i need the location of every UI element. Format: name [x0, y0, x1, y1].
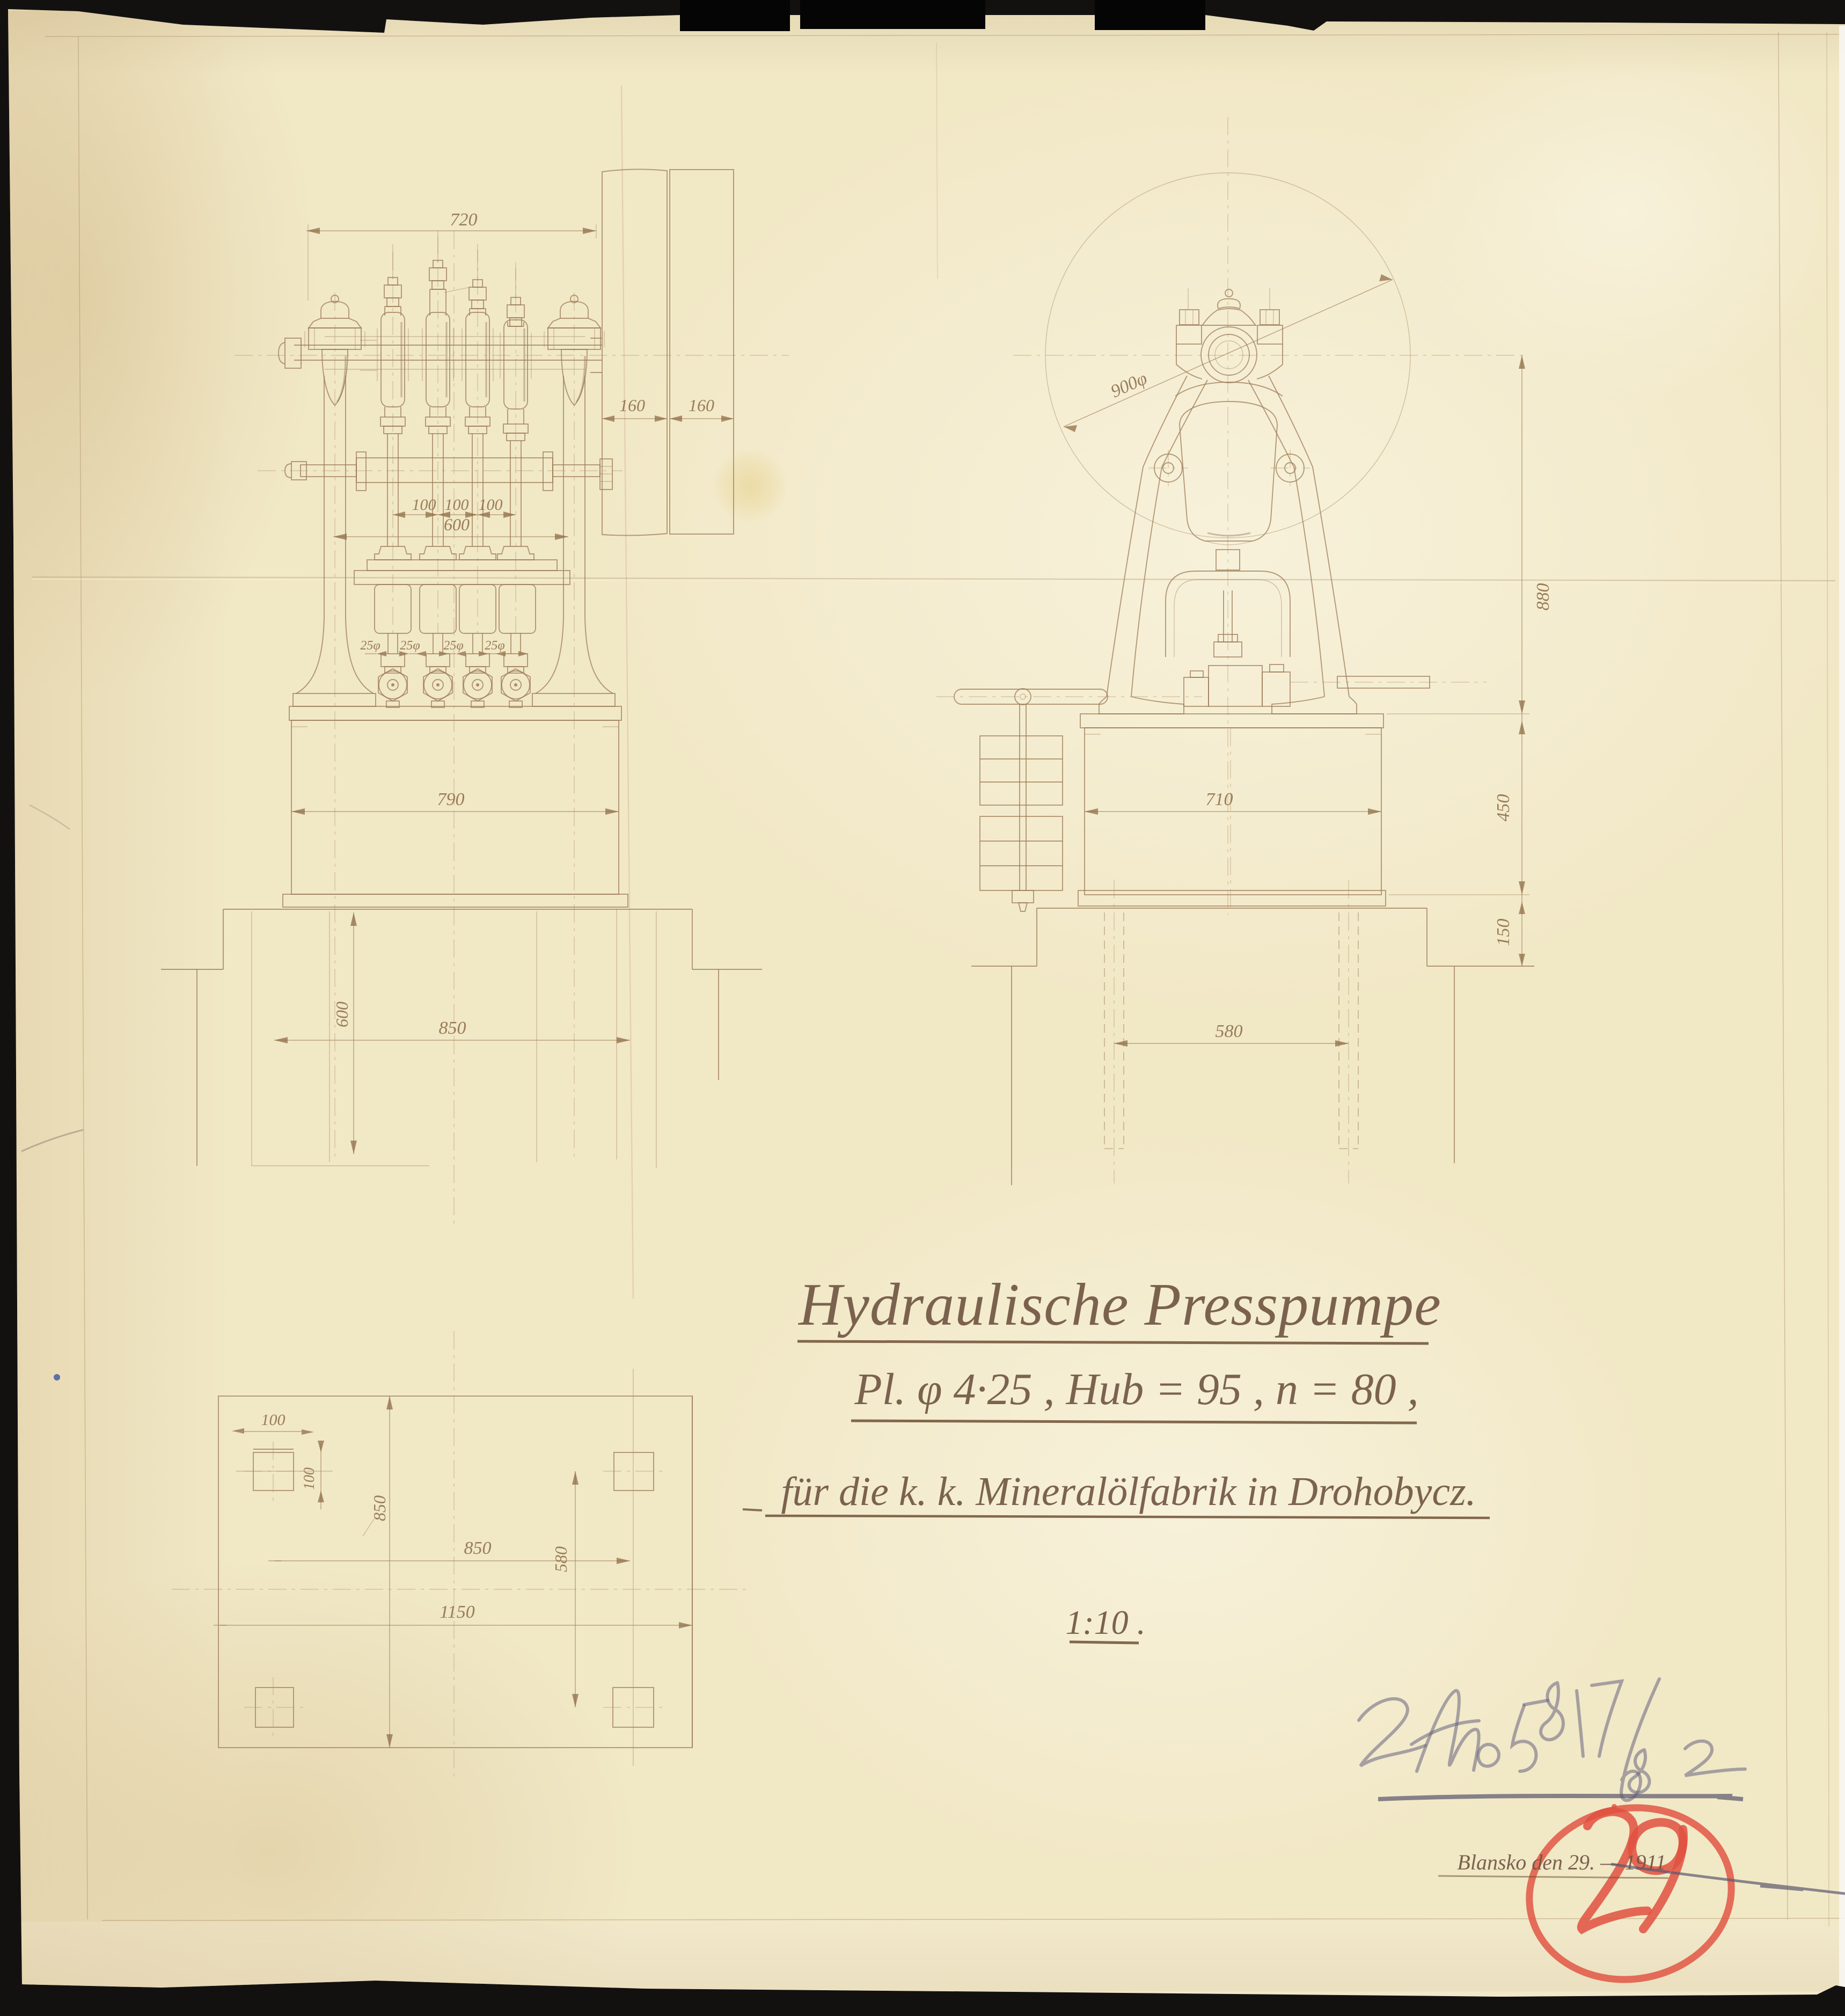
svg-text:150: 150 [1493, 919, 1513, 946]
svg-text:25φ: 25φ [400, 639, 420, 653]
svg-text:880: 880 [1533, 583, 1553, 611]
svg-text:25φ: 25φ [485, 639, 504, 653]
svg-text:25φ: 25φ [360, 639, 380, 653]
svg-text:450: 450 [1493, 794, 1513, 822]
svg-text:100: 100 [445, 496, 469, 514]
svg-text:1150: 1150 [440, 1602, 474, 1622]
svg-text:100: 100 [301, 1467, 318, 1490]
svg-text:710: 710 [1206, 790, 1233, 809]
svg-text:850: 850 [370, 1495, 389, 1521]
svg-text:Pl. φ 4·25 , Hub = 95 , n = 80: Pl. φ 4·25 , Hub = 95 , n = 80 , [854, 1364, 1418, 1414]
svg-text:1:10 .: 1:10 . [1065, 1603, 1145, 1641]
svg-text:600: 600 [332, 1002, 352, 1027]
svg-text:580: 580 [551, 1546, 570, 1572]
svg-text:850: 850 [464, 1538, 492, 1558]
svg-text:790: 790 [437, 790, 465, 809]
svg-text:Hydraulische Presspumpe: Hydraulische Presspumpe [797, 1272, 1441, 1338]
svg-text:160: 160 [689, 396, 714, 415]
svg-text:850: 850 [439, 1018, 466, 1038]
svg-text:580: 580 [1216, 1021, 1243, 1041]
svg-text:100: 100 [479, 496, 503, 514]
svg-text:100: 100 [261, 1411, 285, 1429]
svg-text:160: 160 [619, 396, 645, 415]
svg-text:25φ: 25φ [443, 639, 463, 653]
svg-text:600: 600 [444, 515, 470, 534]
svg-text:100: 100 [412, 496, 436, 514]
svg-text:Blansko den 29. — 1911: Blansko den 29. — 1911 [1457, 1850, 1666, 1874]
svg-text:für die k. k. Mineralölfabrik: für die k. k. Mineralölfabrik in Drohoby… [781, 1469, 1476, 1514]
svg-text:720: 720 [450, 210, 478, 230]
